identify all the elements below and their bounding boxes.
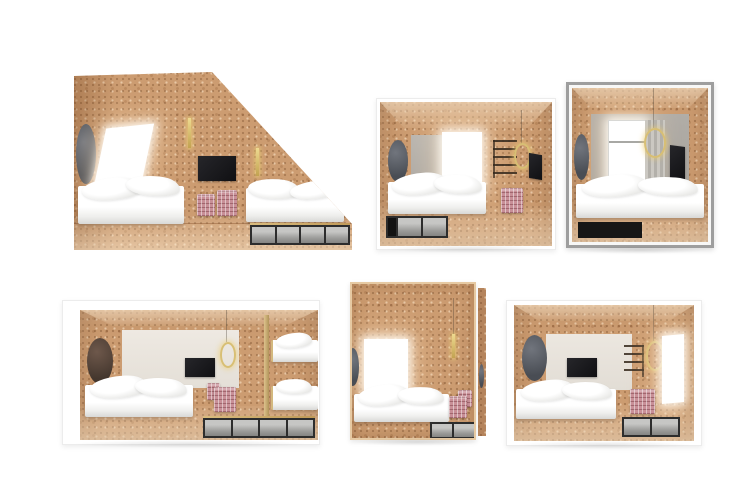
bed xyxy=(354,394,449,422)
plaid-pouf xyxy=(197,194,215,216)
light-cord xyxy=(453,298,454,334)
bed xyxy=(388,182,486,214)
side-window xyxy=(662,334,684,404)
ring-light xyxy=(220,342,236,368)
tv xyxy=(198,156,236,181)
drawer-unit xyxy=(430,422,476,439)
light-cord xyxy=(226,310,227,342)
drawer xyxy=(288,420,314,436)
plaid-pouf xyxy=(214,387,236,412)
drawer xyxy=(205,420,231,436)
drawer xyxy=(301,227,324,243)
room-box-wide xyxy=(62,300,320,445)
ground-shadow xyxy=(384,245,546,253)
bunk-bed-bottom xyxy=(271,386,318,410)
cork-interior xyxy=(514,305,694,441)
drawer xyxy=(233,420,259,436)
pendant-tube-light xyxy=(256,148,259,176)
ground-shadow xyxy=(354,438,480,446)
tv xyxy=(529,153,542,180)
ring-light xyxy=(644,128,666,158)
bed xyxy=(516,389,616,419)
plaid-pouf xyxy=(501,188,523,213)
plaid-pouf xyxy=(449,396,467,418)
oval-mirror xyxy=(522,335,547,381)
black-drawer-front xyxy=(578,222,642,238)
tv xyxy=(185,358,215,377)
duvet xyxy=(276,378,313,395)
cork-ceiling xyxy=(572,88,708,108)
oval-mirror-edge xyxy=(350,348,359,386)
drawer xyxy=(624,419,650,435)
room-elevation xyxy=(346,280,488,444)
cork-face xyxy=(350,282,476,440)
cork-interior xyxy=(572,88,708,242)
ground-shadow xyxy=(516,441,692,449)
drawer xyxy=(260,420,286,436)
drawer xyxy=(388,218,396,236)
ground-shadow xyxy=(572,246,708,254)
bed xyxy=(85,385,193,417)
drawer xyxy=(326,227,349,243)
oval-mirror xyxy=(574,134,589,180)
drawer xyxy=(398,218,421,236)
room-box-window xyxy=(506,300,702,446)
cork-interior xyxy=(80,310,318,440)
tv xyxy=(670,145,685,181)
ground-shadow xyxy=(72,440,308,448)
render-collage-canvas xyxy=(0,0,750,504)
cork-ceiling xyxy=(80,310,318,326)
pendant-tube-light xyxy=(188,118,191,148)
tv xyxy=(567,358,597,377)
room-framed-box xyxy=(566,82,714,248)
drawer-unit xyxy=(386,216,448,238)
room-box-small xyxy=(376,98,556,250)
duvet xyxy=(397,385,444,406)
drawer xyxy=(454,424,474,437)
cork-ceiling xyxy=(380,102,552,128)
oval-mirror xyxy=(76,124,96,184)
oval-mirror-edge xyxy=(479,364,484,388)
drawer-unit xyxy=(622,417,680,437)
bed xyxy=(576,184,704,218)
light-cord xyxy=(653,88,654,128)
ladder-shelf xyxy=(624,345,644,377)
cork-ceiling xyxy=(514,305,694,321)
cork-interior xyxy=(380,102,552,246)
bed xyxy=(78,186,184,224)
window-bar xyxy=(609,141,645,143)
drawer xyxy=(432,424,452,437)
duvet xyxy=(637,175,698,198)
drawer xyxy=(277,227,300,243)
plaid-pouf xyxy=(217,190,237,216)
drawer xyxy=(423,218,446,236)
drawer xyxy=(652,419,678,435)
room-attic xyxy=(60,28,360,252)
plaid-pouf xyxy=(630,389,655,414)
light-cord xyxy=(653,305,654,341)
drawer-unit xyxy=(250,225,350,245)
light-cord xyxy=(521,110,522,144)
drawer-unit xyxy=(203,418,315,438)
side-wall xyxy=(478,288,486,436)
pendant-tube-light xyxy=(452,334,455,358)
brass-partition xyxy=(264,315,269,421)
drawer xyxy=(252,227,275,243)
bunk-bed-top xyxy=(271,340,318,362)
duvet xyxy=(276,332,313,349)
